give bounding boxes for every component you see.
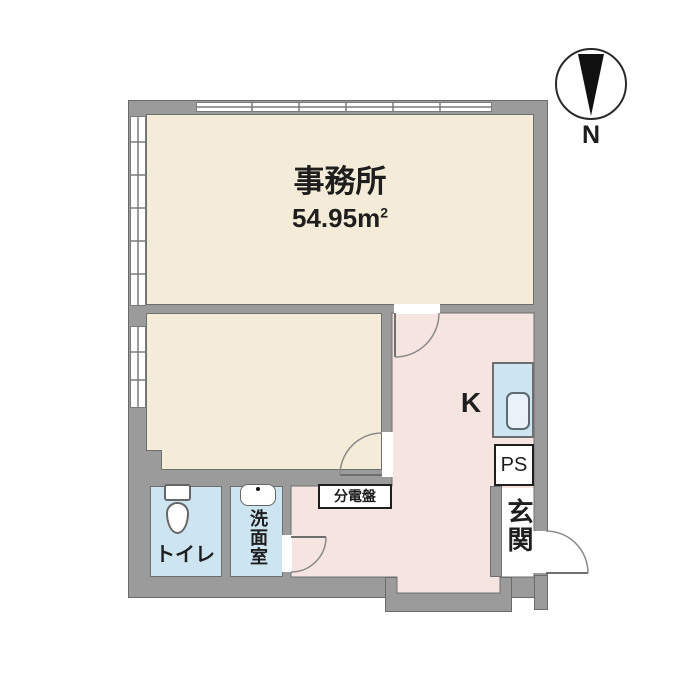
middle-room-floor (146, 313, 382, 470)
window-band-top (196, 102, 492, 112)
pipe-space-box: PS (494, 444, 534, 486)
pipe-space-label: PS (501, 454, 528, 476)
compass-circle (556, 49, 626, 119)
toilet-tank (164, 484, 191, 501)
middle-room-door-opening (382, 432, 393, 477)
washroom-label: 洗面室 (245, 509, 267, 566)
entrance-door-opening (533, 531, 548, 573)
compass-north-label: N (576, 122, 606, 150)
window-band-left-lower (130, 326, 146, 408)
office-area: 54.95m2 (292, 204, 388, 233)
window-band-left-upper (130, 116, 146, 306)
washroom-door-opening (282, 535, 292, 572)
kitchen-label: K (456, 388, 486, 419)
kitchen-sink (506, 392, 530, 430)
bottom-right-wall-stub (534, 575, 548, 610)
distribution-board-box: 分電盤 (318, 484, 392, 509)
middle-room-wall-notch (146, 450, 162, 470)
entrance-side-wall (490, 486, 502, 577)
north-needle-icon (578, 54, 604, 116)
entrance-door-arc (546, 531, 588, 573)
distribution-board-label: 分電盤 (334, 489, 376, 504)
toilet-label: トイレ (147, 544, 223, 566)
office-door-opening (394, 304, 440, 314)
floor-plan: PS 分電盤 事務所 54.95m2 K 玄関 トイレ 洗面室 N (0, 0, 700, 700)
office-name: 事務所 (292, 165, 388, 199)
entrance-label: 玄関 (503, 498, 533, 554)
office-room-label: 事務所 54.95m2 (292, 165, 388, 233)
washroom-faucet-dot (256, 487, 260, 491)
